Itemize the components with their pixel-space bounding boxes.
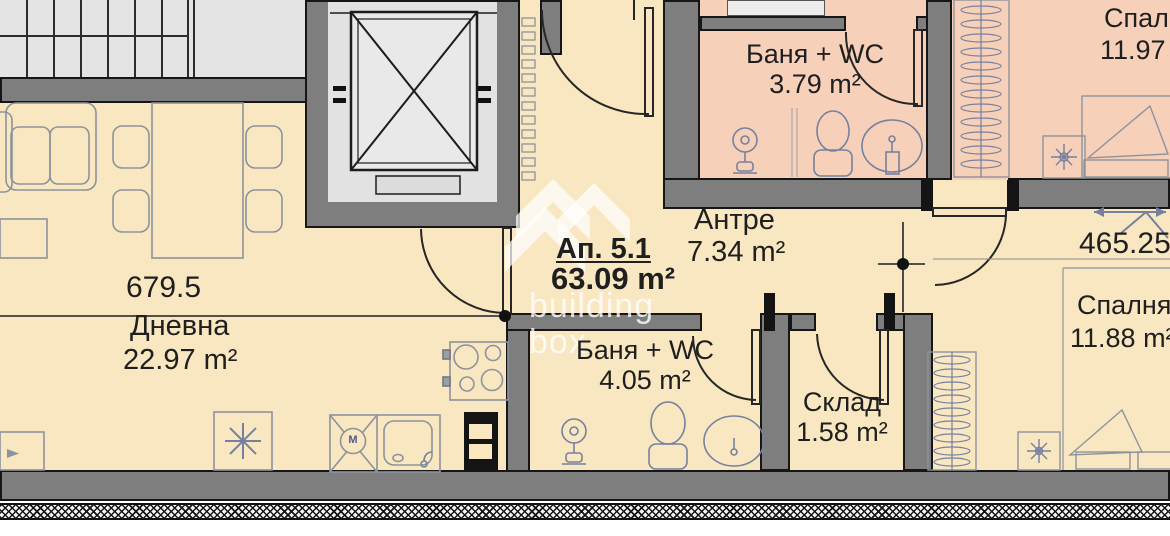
elevator-interior [328, 2, 497, 202]
bathroom-bottom-name: Баня + WC [528, 336, 762, 366]
bathroom-top-name: Баня + WC [698, 40, 932, 70]
apartment-area: 63.09 m² [551, 262, 675, 296]
stairwell [0, 0, 307, 77]
bathroom-top-label: Баня + WC 3.79 m² [698, 40, 932, 99]
hallway-label: Антре [694, 205, 775, 237]
living-room-label: Дневна [130, 311, 229, 343]
wall-under-stairs [0, 77, 307, 103]
door-jamb-bedroom2-left [921, 180, 933, 211]
insulation-hatch [0, 503, 1170, 520]
wall-hall-right [663, 0, 700, 180]
storage-name: Склад [772, 388, 912, 418]
floor-plan: building box M 679.5 Дневна 22.97 m² Ап.… [0, 0, 1170, 536]
bedroom-bottom-area: 11.88 m² [1070, 324, 1170, 354]
bedroom-top-area: 11.97 [1100, 36, 1166, 66]
bathroom-bottom-label: Баня + WC 4.05 m² [528, 336, 762, 395]
washing-machine-letter: M [346, 434, 360, 446]
wall-mid-horizontal-right [1008, 178, 1170, 209]
door-post-bath2 [764, 293, 775, 331]
bedroom-bottom-label: Спалня [1077, 291, 1170, 321]
wall-hall-top-stub [540, 0, 562, 55]
bathroom-bottom-area: 4.05 m² [528, 366, 762, 396]
dimension-bedroom-width: 465.25 [1079, 227, 1170, 260]
shaft-niche [727, 0, 825, 16]
hallway-area: 7.34 m² [687, 237, 785, 269]
wall-bath-top-1 [700, 16, 846, 31]
wall-exterior-bottom [0, 470, 1170, 501]
bedroom-top-label: Спалня [1104, 4, 1170, 34]
door-jamb-bedroom2-right [1007, 180, 1019, 211]
storage-area: 1.58 m² [772, 418, 912, 448]
wall-storage-top-left [790, 313, 816, 331]
living-room-area: 22.97 m² [123, 345, 237, 377]
storage-label: Склад 1.58 m² [772, 388, 912, 447]
door-post-storage [884, 293, 895, 331]
wall-kitchen-right [506, 328, 530, 474]
dimension-living-width: 679.5 [126, 271, 201, 304]
bathroom-top-area: 3.79 m² [698, 70, 932, 100]
